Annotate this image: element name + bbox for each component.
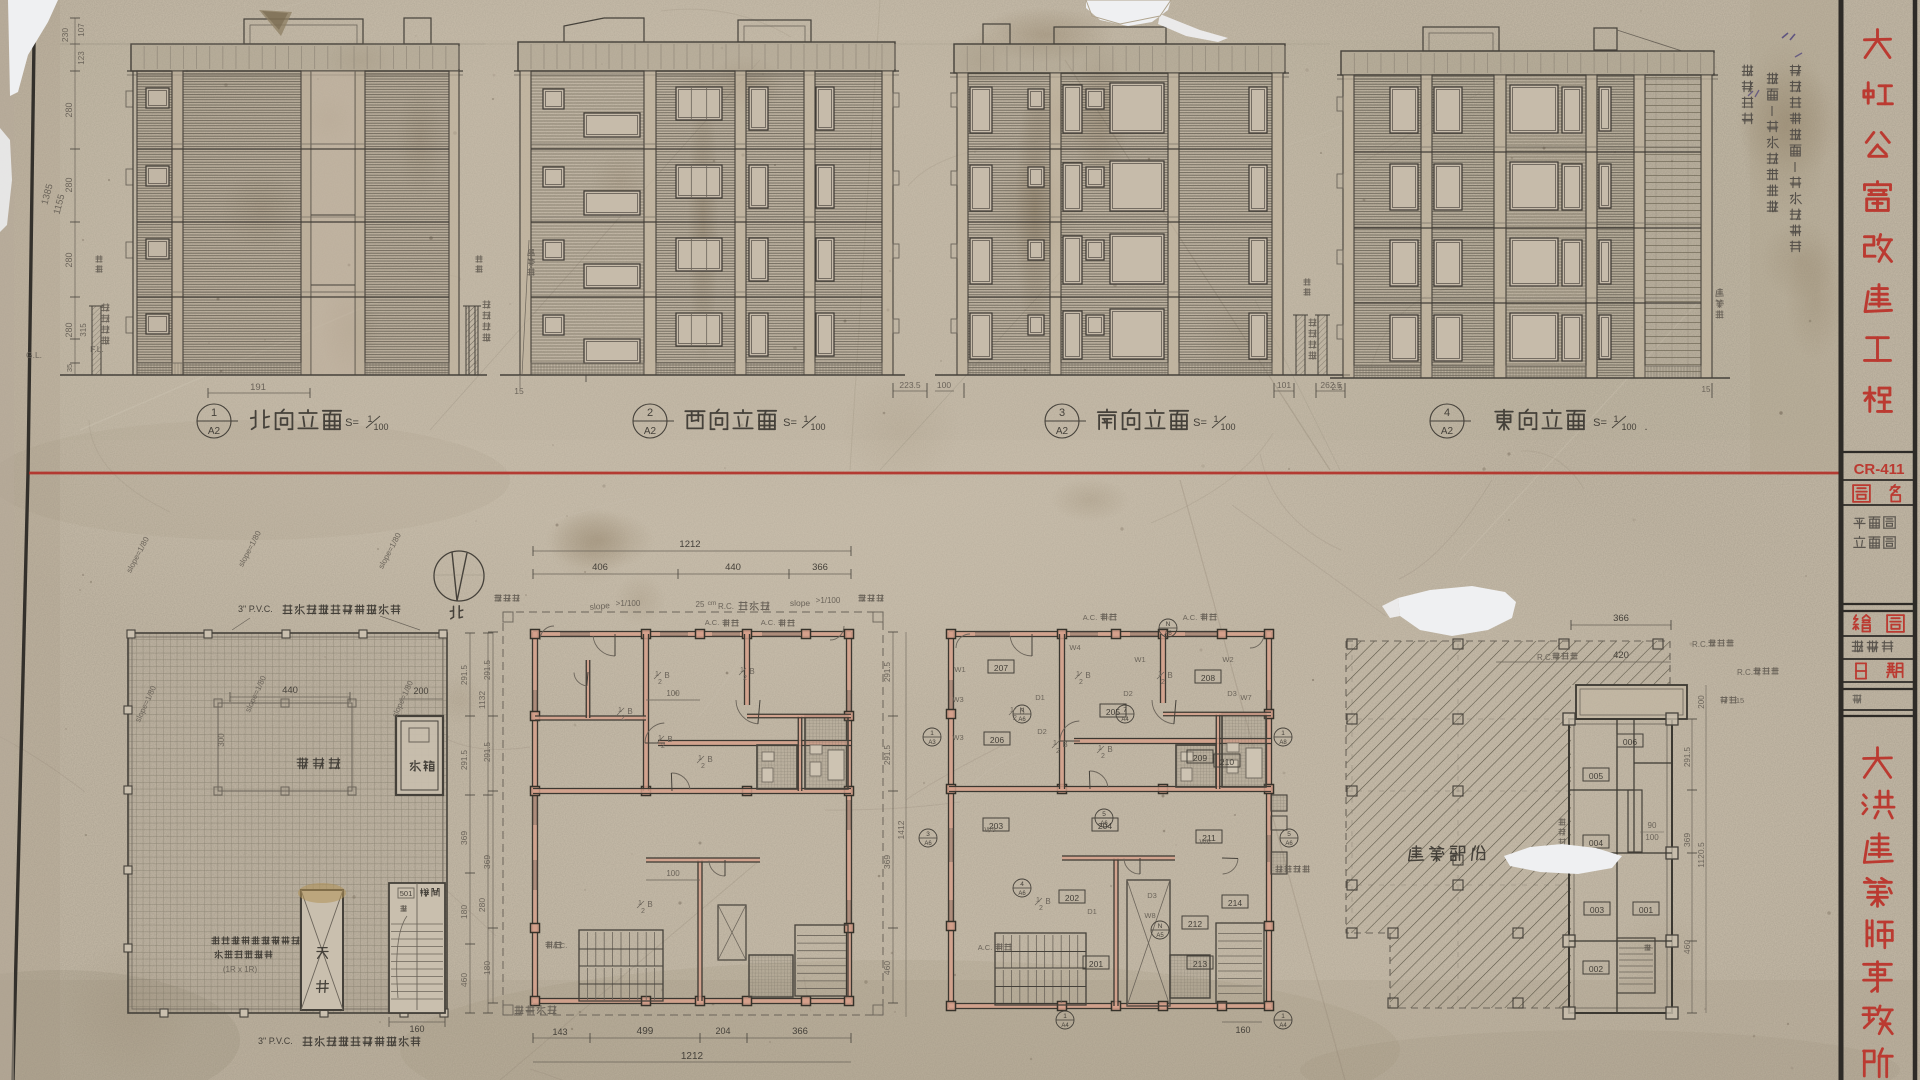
svg-text:280: 280 xyxy=(64,102,74,117)
svg-text:191: 191 xyxy=(250,382,266,393)
svg-text:3" P.V.C.: 3" P.V.C. xyxy=(258,1036,293,1046)
svg-text:100: 100 xyxy=(1645,833,1659,842)
svg-text:366: 366 xyxy=(812,562,828,573)
svg-text:5: 5 xyxy=(1287,831,1291,838)
svg-text:369: 369 xyxy=(459,831,469,845)
svg-text:4: 4 xyxy=(1444,407,1450,419)
svg-text:A6: A6 xyxy=(924,841,932,847)
svg-text:D2: D2 xyxy=(1037,727,1047,736)
svg-text:R.C.: R.C. xyxy=(718,602,734,611)
svg-text:366: 366 xyxy=(792,1026,808,1037)
svg-text:R.C.: R.C. xyxy=(1537,653,1553,662)
svg-text:280: 280 xyxy=(477,898,487,912)
svg-text:100: 100 xyxy=(1220,422,1235,432)
svg-text:B: B xyxy=(1019,707,1024,716)
svg-text:200: 200 xyxy=(413,686,428,696)
svg-text:cm: cm xyxy=(708,600,717,607)
svg-text:B: B xyxy=(1167,671,1172,680)
svg-text:460: 460 xyxy=(882,961,892,975)
svg-text:A2: A2 xyxy=(644,426,657,437)
svg-text:123: 123 xyxy=(77,51,86,65)
svg-text:100: 100 xyxy=(937,380,951,390)
svg-text:2: 2 xyxy=(1039,905,1043,912)
svg-text:1: 1 xyxy=(930,730,934,737)
svg-text:2: 2 xyxy=(743,675,747,682)
svg-text:207: 207 xyxy=(994,663,1008,673)
svg-text:A6: A6 xyxy=(1018,717,1026,723)
svg-text:N: N xyxy=(1158,923,1163,930)
svg-text:D1: D1 xyxy=(1087,907,1097,916)
svg-text:A6: A6 xyxy=(1100,821,1108,827)
svg-text:1412: 1412 xyxy=(896,820,906,839)
svg-text:R.C.: R.C. xyxy=(1737,668,1753,677)
svg-text:499: 499 xyxy=(637,1026,654,1037)
svg-text:A4: A4 xyxy=(1121,717,1129,723)
svg-text:2: 2 xyxy=(1056,748,1060,755)
svg-text:W1: W1 xyxy=(1134,655,1145,664)
svg-text:A.C.: A.C. xyxy=(761,618,776,627)
svg-text:214: 214 xyxy=(1228,898,1242,908)
svg-text:006: 006 xyxy=(1623,737,1637,747)
svg-text:1132: 1132 xyxy=(477,691,487,710)
svg-text:210: 210 xyxy=(1220,757,1234,767)
svg-text:2: 2 xyxy=(658,679,662,686)
svg-text:280: 280 xyxy=(64,177,74,192)
svg-text:3" P.V.C.: 3" P.V.C. xyxy=(238,604,273,614)
svg-text:A4: A4 xyxy=(1279,1023,1287,1029)
svg-text:W2: W2 xyxy=(1222,655,1233,664)
svg-text:A2: A2 xyxy=(1441,426,1454,437)
svg-text:S=: S= xyxy=(1593,417,1607,429)
svg-text:002: 002 xyxy=(1589,964,1603,974)
svg-text:B: B xyxy=(707,755,712,764)
svg-text:202: 202 xyxy=(1065,893,1079,903)
svg-text:440: 440 xyxy=(282,685,298,696)
svg-text:300: 300 xyxy=(217,733,226,747)
svg-text:291.5: 291.5 xyxy=(883,661,892,682)
svg-text:460: 460 xyxy=(1682,940,1692,954)
svg-text:15: 15 xyxy=(1736,696,1744,705)
svg-text:B: B xyxy=(1107,745,1112,754)
svg-text:1: 1 xyxy=(211,407,217,419)
svg-text:213: 213 xyxy=(1193,959,1207,969)
svg-text:CR-411: CR-411 xyxy=(1854,461,1905,478)
svg-text:3: 3 xyxy=(1059,407,1065,419)
svg-text:501: 501 xyxy=(400,889,413,898)
svg-text:D3: D3 xyxy=(1227,689,1237,698)
svg-text:B: B xyxy=(627,707,632,716)
svg-text:A.C.: A.C. xyxy=(1183,613,1198,622)
svg-text:>1/100: >1/100 xyxy=(816,596,841,605)
svg-text:230: 230 xyxy=(60,28,70,42)
svg-text:2.5: 2.5 xyxy=(1331,383,1343,392)
svg-text:209: 209 xyxy=(1193,753,1207,763)
svg-text:B: B xyxy=(749,667,754,676)
svg-text:101: 101 xyxy=(1277,380,1291,390)
svg-text:W6: W6 xyxy=(1199,837,1210,846)
svg-text:291.5: 291.5 xyxy=(483,659,492,680)
svg-text:.: . xyxy=(1644,421,1647,433)
svg-text:>1/100: >1/100 xyxy=(616,599,641,608)
svg-text:7: 7 xyxy=(1123,707,1127,714)
svg-text:315: 315 xyxy=(79,323,88,337)
svg-text:212: 212 xyxy=(1188,919,1202,929)
svg-text:A6: A6 xyxy=(1018,891,1026,897)
svg-text:3: 3 xyxy=(926,831,930,838)
svg-text:W7: W7 xyxy=(1240,693,1251,702)
svg-text:100: 100 xyxy=(810,422,825,432)
svg-text:A2: A2 xyxy=(1056,426,1069,437)
svg-text:90: 90 xyxy=(1648,821,1657,830)
svg-text:D3: D3 xyxy=(1147,891,1157,900)
svg-text:A.C.: A.C. xyxy=(978,943,993,952)
svg-text:369: 369 xyxy=(882,855,892,869)
svg-text:A6: A6 xyxy=(1285,841,1293,847)
svg-text:180: 180 xyxy=(482,961,492,975)
svg-text:180: 180 xyxy=(459,905,469,919)
svg-text:003: 003 xyxy=(1590,905,1604,915)
svg-text:W1: W1 xyxy=(954,665,965,674)
svg-text:S=: S= xyxy=(1193,417,1207,429)
svg-text:366: 366 xyxy=(1613,613,1629,624)
svg-text:S=: S= xyxy=(783,417,797,429)
svg-text:25: 25 xyxy=(696,600,705,609)
svg-text:N: N xyxy=(1166,621,1171,628)
svg-text:004: 004 xyxy=(1589,838,1603,848)
svg-text:100: 100 xyxy=(666,689,680,698)
svg-text:B: B xyxy=(647,900,652,909)
svg-text:223.5: 223.5 xyxy=(899,380,921,390)
svg-text:143: 143 xyxy=(552,1027,567,1037)
svg-text:2: 2 xyxy=(647,407,653,419)
svg-text:15: 15 xyxy=(514,386,524,396)
svg-text:A3: A3 xyxy=(928,740,936,746)
svg-text:F.L.: F.L. xyxy=(90,344,104,354)
svg-text:B: B xyxy=(1045,897,1050,906)
svg-text:200: 200 xyxy=(1697,695,1706,709)
svg-text:369: 369 xyxy=(1682,833,1692,847)
svg-text:208: 208 xyxy=(1201,673,1215,683)
svg-text:001: 001 xyxy=(1639,905,1653,915)
svg-text:B: B xyxy=(1062,740,1067,749)
svg-text:460: 460 xyxy=(459,973,469,987)
svg-text:1: 1 xyxy=(1281,730,1285,737)
svg-text:D2: D2 xyxy=(1123,689,1133,698)
svg-text:100: 100 xyxy=(666,869,680,878)
svg-text:B: B xyxy=(667,735,672,744)
svg-text:W4: W4 xyxy=(1069,643,1080,652)
svg-text:1120.5: 1120.5 xyxy=(1696,842,1706,868)
svg-text:406: 406 xyxy=(592,562,608,573)
svg-text:35: 35 xyxy=(65,364,74,372)
svg-text:291.5: 291.5 xyxy=(460,664,469,685)
svg-text:A2: A2 xyxy=(208,426,221,437)
svg-text:2: 2 xyxy=(1013,715,1017,722)
svg-text:W3: W3 xyxy=(952,733,963,742)
svg-text:2: 2 xyxy=(701,763,705,770)
svg-text:005: 005 xyxy=(1589,771,1603,781)
svg-text:291.5: 291.5 xyxy=(460,749,469,770)
svg-text:100: 100 xyxy=(1621,422,1636,432)
svg-text:R.C.: R.C. xyxy=(1692,640,1708,649)
svg-text:206: 206 xyxy=(990,735,1004,745)
svg-text:A5: A5 xyxy=(1156,933,1164,939)
svg-text:W5: W5 xyxy=(984,825,995,834)
svg-text:15: 15 xyxy=(1702,385,1711,394)
svg-text:A8: A8 xyxy=(1279,740,1287,746)
svg-text:2: 2 xyxy=(1079,679,1083,686)
svg-text:slope: slope xyxy=(790,598,811,608)
svg-text:291.5: 291.5 xyxy=(1683,746,1692,767)
svg-text:A4: A4 xyxy=(1061,1023,1069,1029)
svg-text:D1: D1 xyxy=(1035,693,1045,702)
svg-text:(1R x 1R): (1R x 1R) xyxy=(223,965,258,974)
svg-text:369: 369 xyxy=(482,855,492,869)
svg-text:2: 2 xyxy=(641,908,645,915)
svg-text:1212: 1212 xyxy=(681,1051,704,1062)
svg-text:291.5: 291.5 xyxy=(883,744,892,765)
svg-text:W8: W8 xyxy=(1144,911,1155,920)
svg-text:107: 107 xyxy=(77,23,86,37)
svg-text:160: 160 xyxy=(409,1024,424,1034)
svg-text:W3: W3 xyxy=(952,695,963,704)
svg-text:100: 100 xyxy=(373,422,388,432)
svg-text:G.L.: G.L. xyxy=(26,350,42,360)
svg-text:A6: A6 xyxy=(1164,631,1172,637)
svg-text:2: 2 xyxy=(621,715,625,722)
svg-text:2: 2 xyxy=(1101,753,1105,760)
svg-text:1: 1 xyxy=(1063,1013,1067,1020)
svg-text:A.C.: A.C. xyxy=(705,618,720,627)
svg-text:4: 4 xyxy=(1020,881,1024,888)
svg-text:5: 5 xyxy=(1102,811,1106,818)
svg-text:A.C.: A.C. xyxy=(1083,613,1098,622)
svg-text:1212: 1212 xyxy=(679,539,700,550)
svg-text:2: 2 xyxy=(661,743,665,750)
svg-text:B: B xyxy=(664,671,669,680)
svg-text:S=: S= xyxy=(345,417,359,429)
svg-text:280: 280 xyxy=(64,322,74,337)
svg-text:B: B xyxy=(1085,671,1090,680)
svg-text:420: 420 xyxy=(1613,650,1629,661)
svg-text:440: 440 xyxy=(725,562,741,573)
svg-text:204: 204 xyxy=(715,1026,730,1036)
svg-text:160: 160 xyxy=(1235,1025,1250,1035)
svg-text:280: 280 xyxy=(64,252,74,267)
svg-text:2: 2 xyxy=(1161,679,1165,686)
svg-text:1: 1 xyxy=(1281,1013,1285,1020)
svg-text:201: 201 xyxy=(1089,959,1103,969)
svg-text:slope: slope xyxy=(589,600,610,612)
svg-text:291.5: 291.5 xyxy=(483,741,492,762)
